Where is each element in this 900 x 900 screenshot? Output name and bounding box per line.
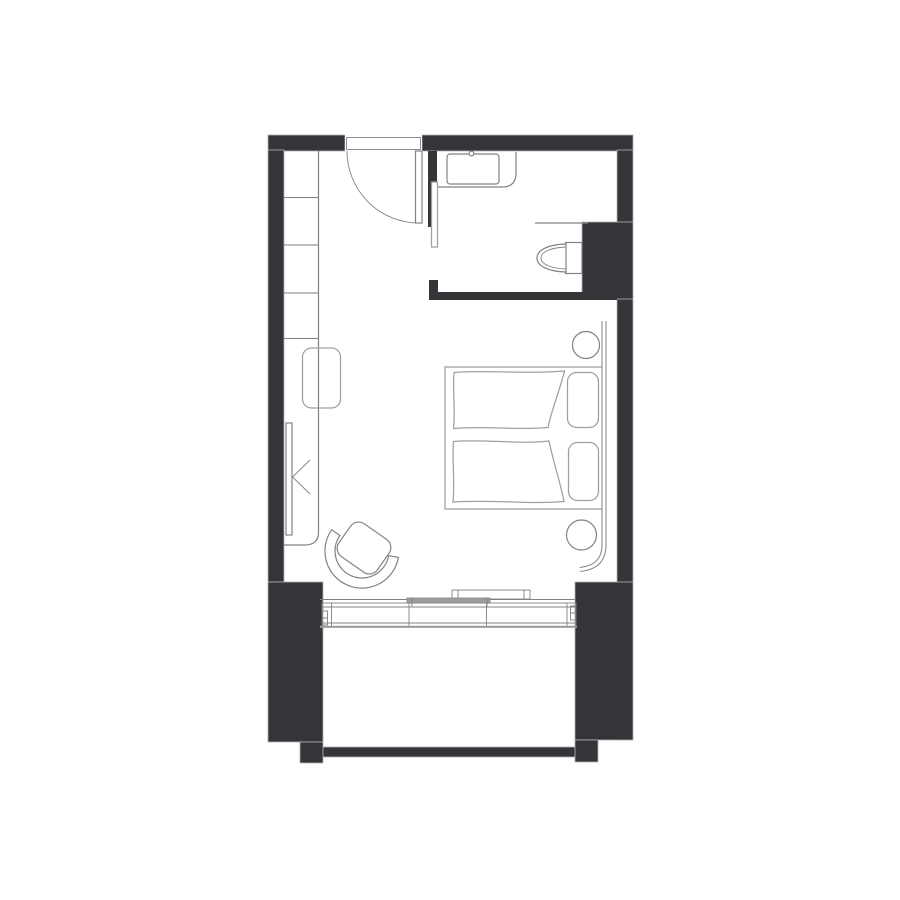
window-wall [320, 590, 577, 627]
balcony-railing [323, 747, 575, 757]
wall-balcony-right-pier [575, 740, 598, 762]
bathroom [432, 151, 589, 273]
stool [303, 348, 341, 408]
wall-toilet-niche [582, 222, 633, 299]
wall-bathroom-bottom [429, 292, 617, 300]
round-side-table-bottom [567, 520, 597, 550]
curtain-panel [407, 598, 490, 603]
door-swing-arc [347, 151, 419, 223]
bed-area [445, 321, 604, 570]
bathroom-sliding-door [432, 182, 438, 247]
wardrobe-desk [284, 151, 341, 545]
sink-basin [447, 154, 499, 184]
wall-left [268, 150, 284, 582]
duvet-right [453, 441, 564, 503]
wardrobe-shelves [284, 198, 319, 339]
wall-balcony-left-pier [300, 742, 323, 763]
wall-bathroom-stub [429, 280, 438, 300]
pillow-right [569, 443, 599, 501]
wall-tv [286, 423, 292, 535]
wall-top-left [268, 135, 345, 151]
duvet-left [454, 371, 565, 429]
pillow-left [568, 373, 599, 428]
entry [345, 135, 422, 223]
toilet [537, 243, 582, 274]
luggage-rack-chevron [293, 460, 311, 494]
round-side-table-top [573, 332, 600, 359]
toilet-tank [566, 243, 583, 274]
faucet [469, 151, 474, 156]
wall-balcony-left [268, 582, 323, 742]
wall-balcony-right [575, 582, 633, 740]
floor-plan-canvas [0, 0, 900, 900]
wall-top-right [422, 135, 633, 151]
entry-swing-door [416, 151, 423, 223]
floor-plan-drawing [0, 0, 900, 900]
armchair [325, 518, 398, 588]
